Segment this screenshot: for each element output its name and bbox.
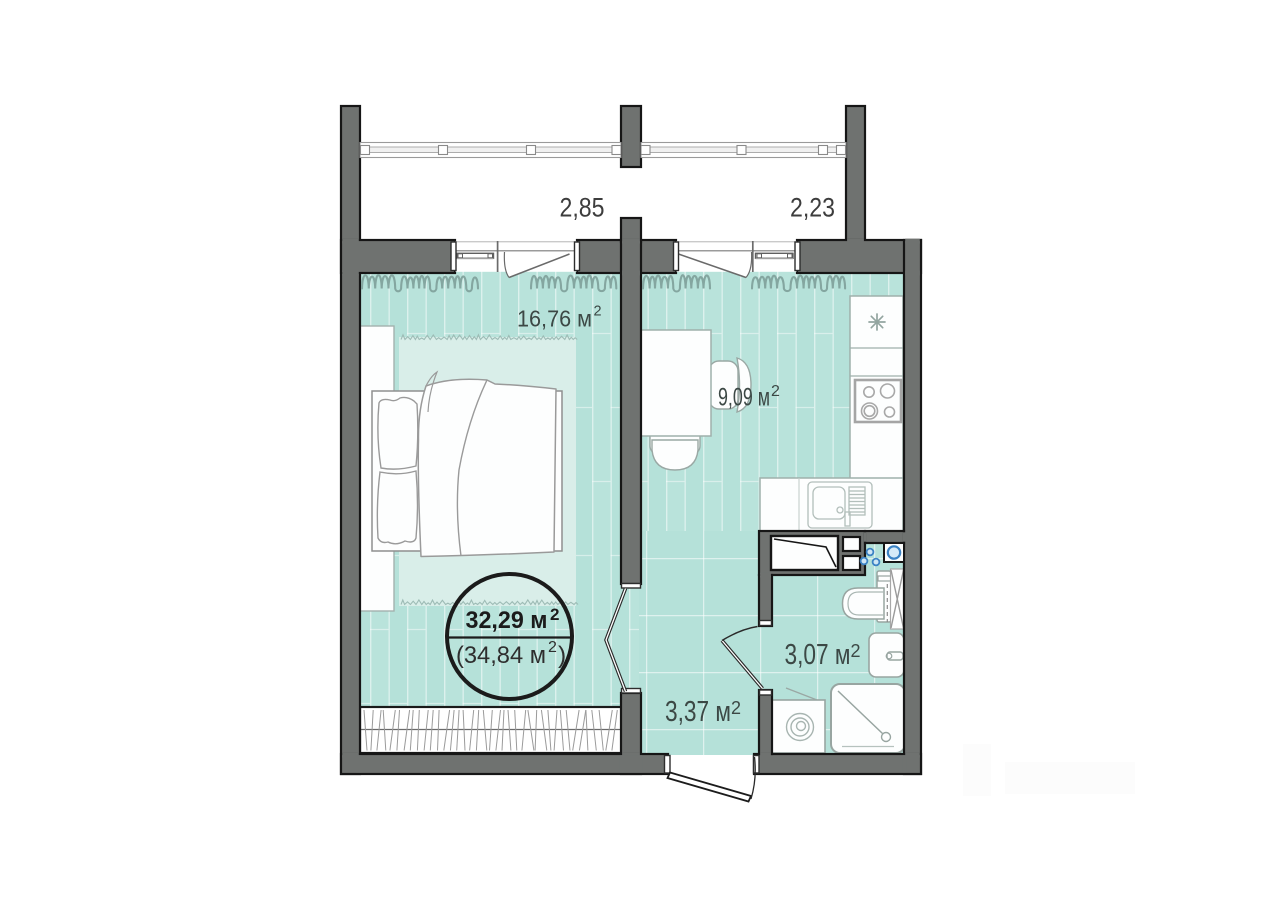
svg-text:32,29 м: 32,29 м (466, 607, 548, 634)
svg-text:2: 2 (731, 698, 741, 718)
svg-text:2: 2 (594, 304, 602, 320)
svg-text:3,07 м: 3,07 м (785, 639, 851, 671)
svg-text:2,23: 2,23 (790, 193, 835, 223)
svg-text:9,09 м: 9,09 м (718, 384, 770, 412)
svg-text:2,85: 2,85 (560, 193, 605, 223)
svg-text:): ) (558, 642, 566, 669)
svg-text:16,76 м: 16,76 м (517, 306, 592, 332)
svg-text:2: 2 (851, 641, 861, 661)
svg-text:2: 2 (550, 605, 559, 624)
svg-text:2: 2 (548, 639, 557, 656)
svg-text:(34,84 м: (34,84 м (456, 642, 546, 669)
svg-text:2: 2 (771, 383, 780, 400)
svg-text:3,37 м: 3,37 м (665, 696, 731, 728)
